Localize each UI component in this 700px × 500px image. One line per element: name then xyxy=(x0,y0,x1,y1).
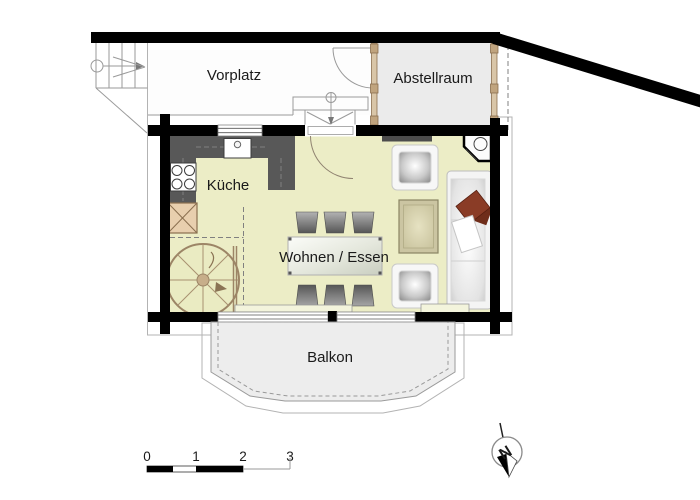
armchair-top xyxy=(392,145,438,190)
balkon-label: Balkon xyxy=(307,349,353,366)
wohnen-essen-label: Wohnen / Essen xyxy=(279,249,389,266)
room-abstellraum: Abstellraum xyxy=(371,43,509,132)
dining-chairs-bottom xyxy=(296,285,374,306)
kueche-label: Küche xyxy=(207,177,250,194)
balcony-window-left xyxy=(218,312,328,322)
floor-plan-drawing: Vorplatz Abstellraum xyxy=(0,0,700,500)
abstellraum-post-wall-right xyxy=(491,43,499,125)
vorplatz-label: Vorplatz xyxy=(207,67,261,84)
scale-tick-2: 2 xyxy=(239,449,247,464)
exterior-stairs xyxy=(91,43,148,133)
floor-plan-page: Vorplatz Abstellraum xyxy=(0,0,700,500)
room-vorplatz: Vorplatz xyxy=(148,43,373,125)
roof-diagonal-edge xyxy=(494,38,700,102)
stove xyxy=(171,163,197,191)
balcony-window-right xyxy=(337,312,415,322)
chimney-shaft xyxy=(168,203,197,233)
scale-bar: 0 1 2 3 xyxy=(143,449,294,472)
window-mullion-post xyxy=(328,311,337,322)
sofa xyxy=(447,171,492,309)
balcony: Balkon xyxy=(202,322,464,413)
scale-tick-0: 0 xyxy=(143,449,151,464)
compass: N xyxy=(492,423,522,477)
wall-left xyxy=(160,125,170,322)
window-sill-left xyxy=(235,305,352,312)
coffee-table xyxy=(399,200,438,253)
top-exterior-wall xyxy=(91,32,500,43)
sideboard xyxy=(382,136,432,142)
scale-tick-1: 1 xyxy=(192,449,200,464)
kitchen-sink xyxy=(224,139,251,159)
kitchen-window xyxy=(218,125,262,136)
dining-chairs-top xyxy=(296,212,374,233)
wall-right xyxy=(490,125,500,322)
armchair-bottom xyxy=(392,264,438,308)
abstellraum-post-wall-left xyxy=(371,43,379,125)
abstellraum-label: Abstellraum xyxy=(393,70,472,87)
